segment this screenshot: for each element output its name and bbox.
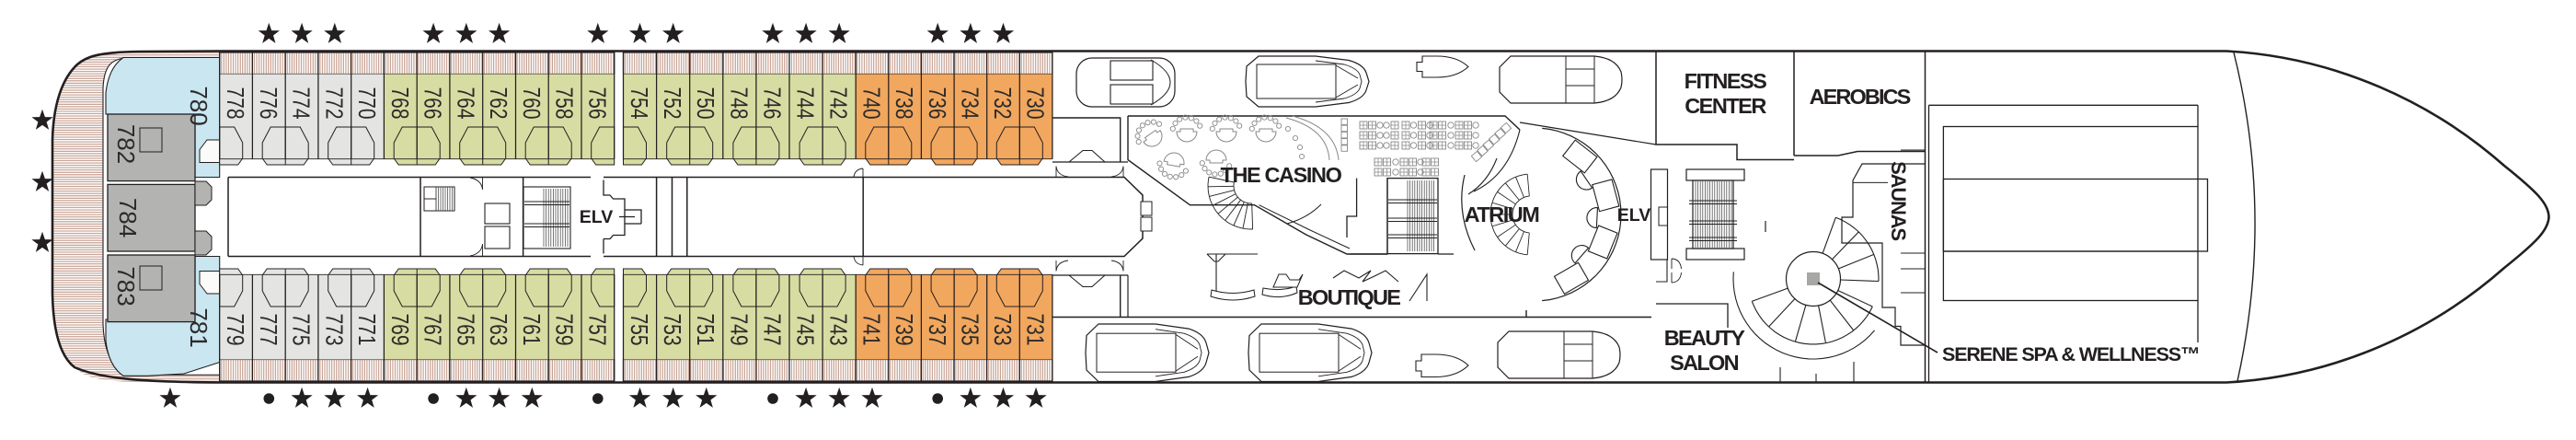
svg-text:SALON: SALON (1670, 351, 1738, 375)
svg-text:759: 759 (550, 313, 577, 345)
svg-text:757: 757 (583, 313, 610, 345)
svg-text:734: 734 (956, 87, 983, 119)
svg-text:763: 763 (485, 313, 512, 345)
svg-text:732: 732 (988, 87, 1015, 119)
svg-text:764: 764 (452, 87, 478, 119)
svg-text:750: 750 (692, 87, 719, 119)
svg-text:SAUNAS: SAUNAS (1887, 161, 1910, 240)
svg-text:762: 762 (485, 87, 512, 119)
svg-text:745: 745 (791, 313, 818, 345)
svg-text:733: 733 (988, 313, 1015, 345)
svg-text:ATRIUM: ATRIUM (1465, 203, 1539, 226)
svg-text:781: 781 (185, 307, 213, 347)
svg-text:782: 782 (112, 124, 140, 164)
svg-text:AEROBICS: AEROBICS (1810, 85, 1911, 109)
svg-text:753: 753 (659, 313, 685, 345)
svg-text:737: 737 (923, 313, 949, 345)
svg-text:735: 735 (956, 313, 983, 345)
svg-text:783: 783 (112, 266, 140, 306)
svg-text:773: 773 (320, 313, 347, 345)
svg-text:FITNESS: FITNESS (1685, 69, 1767, 93)
svg-text:742: 742 (824, 87, 851, 119)
svg-text:751: 751 (692, 313, 719, 345)
svg-text:771: 771 (353, 313, 380, 345)
svg-text:760: 760 (517, 87, 544, 119)
svg-text:778: 778 (222, 87, 248, 119)
svg-text:740: 740 (857, 87, 884, 119)
svg-text:730: 730 (1021, 87, 1048, 119)
svg-text:765: 765 (452, 313, 478, 345)
svg-text:758: 758 (550, 87, 577, 119)
svg-text:736: 736 (923, 87, 949, 119)
svg-text:741: 741 (857, 313, 884, 345)
svg-text:766: 766 (419, 87, 445, 119)
svg-text:CENTER: CENTER (1685, 94, 1766, 118)
svg-text:THE CASINO: THE CASINO (1221, 163, 1342, 187)
svg-text:755: 755 (625, 313, 651, 345)
svg-text:761: 761 (517, 313, 544, 345)
svg-text:743: 743 (824, 313, 851, 345)
svg-text:774: 774 (287, 87, 314, 119)
svg-text:744: 744 (791, 87, 818, 119)
svg-text:775: 775 (287, 313, 314, 345)
svg-text:ELV: ELV (580, 207, 613, 227)
svg-text:746: 746 (758, 87, 785, 119)
svg-text:748: 748 (725, 87, 752, 119)
svg-text:769: 769 (385, 313, 412, 345)
svg-text:SERENE SPA & WELLNESS™: SERENE SPA & WELLNESS™ (1942, 343, 2199, 365)
svg-text:777: 777 (254, 313, 281, 345)
svg-text:772: 772 (320, 87, 347, 119)
svg-text:784: 784 (114, 198, 142, 237)
svg-text:BOUTIQUE: BOUTIQUE (1298, 285, 1400, 309)
svg-text:776: 776 (254, 87, 281, 119)
svg-text:780: 780 (185, 86, 213, 125)
svg-text:779: 779 (222, 313, 248, 345)
svg-text:739: 739 (891, 313, 917, 345)
svg-text:768: 768 (385, 87, 412, 119)
svg-text:770: 770 (353, 87, 380, 119)
svg-text:767: 767 (419, 313, 445, 345)
svg-text:756: 756 (583, 87, 610, 119)
svg-text:738: 738 (891, 87, 917, 119)
svg-text:747: 747 (758, 313, 785, 345)
svg-text:754: 754 (625, 87, 651, 119)
svg-text:ELV: ELV (1617, 205, 1650, 226)
svg-text:752: 752 (659, 87, 685, 119)
svg-text:731: 731 (1021, 313, 1048, 345)
svg-text:749: 749 (725, 313, 752, 345)
svg-text:BEAUTY: BEAUTY (1664, 326, 1745, 350)
